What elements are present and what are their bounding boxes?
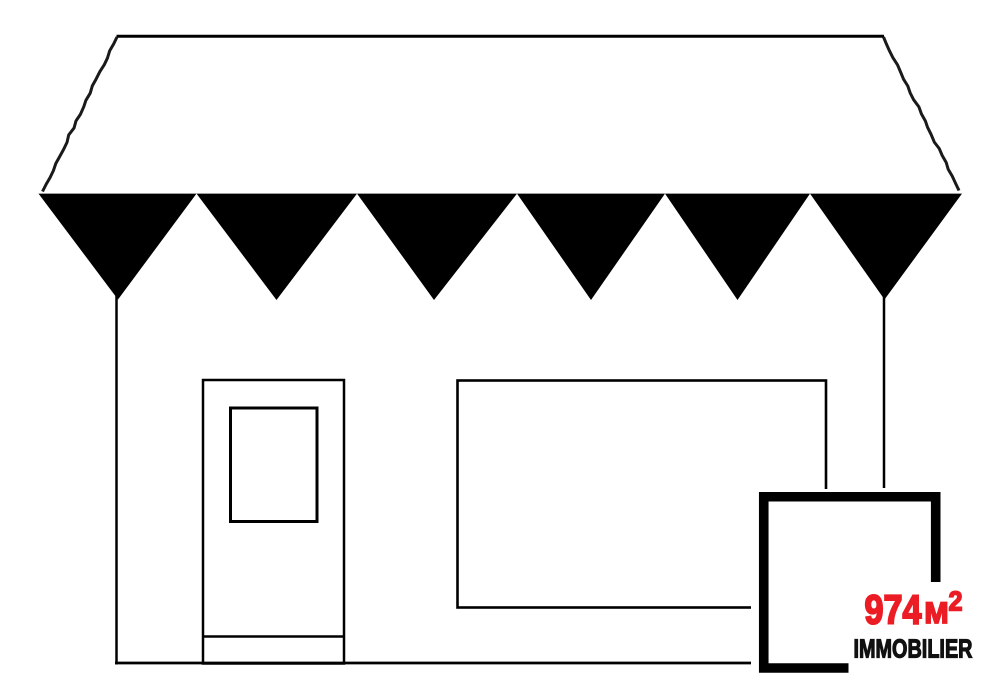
svg-text:974: 974 — [865, 587, 922, 633]
svg-text:IMMOBILIER: IMMOBILIER — [854, 634, 973, 664]
svg-text:2: 2 — [949, 586, 963, 617]
svg-text:M: M — [925, 597, 949, 630]
